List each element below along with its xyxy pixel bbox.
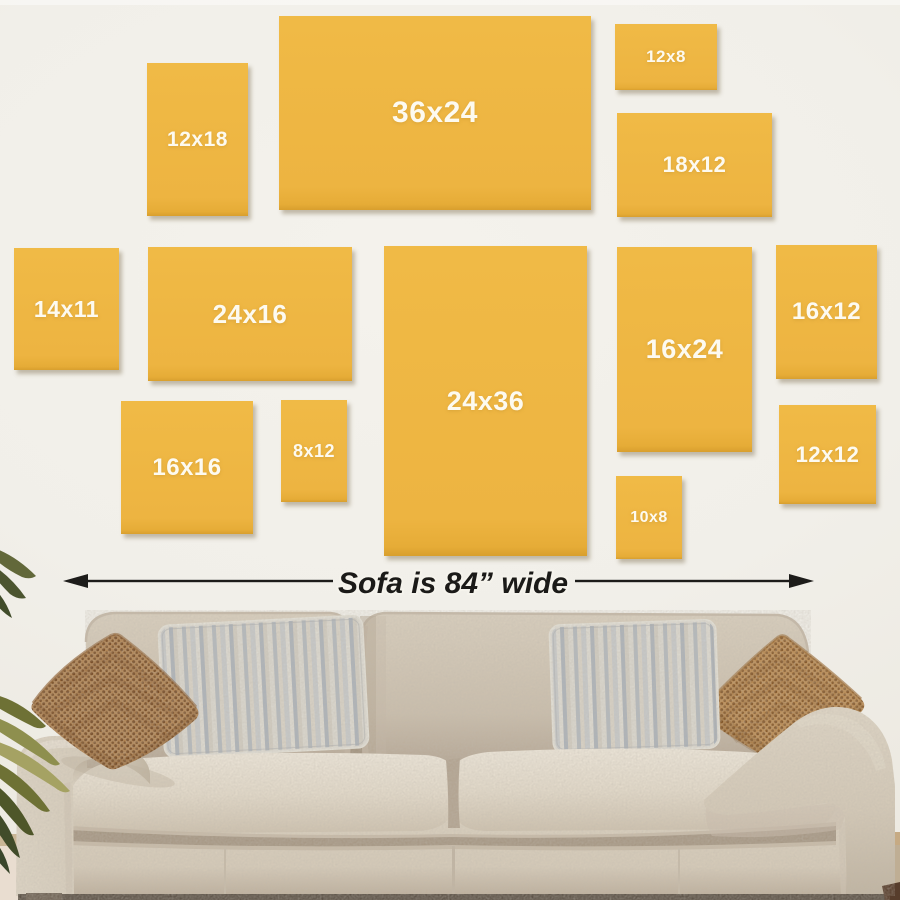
svg-text:Sofa is 84” wide: Sofa is 84” wide: [338, 567, 568, 600]
